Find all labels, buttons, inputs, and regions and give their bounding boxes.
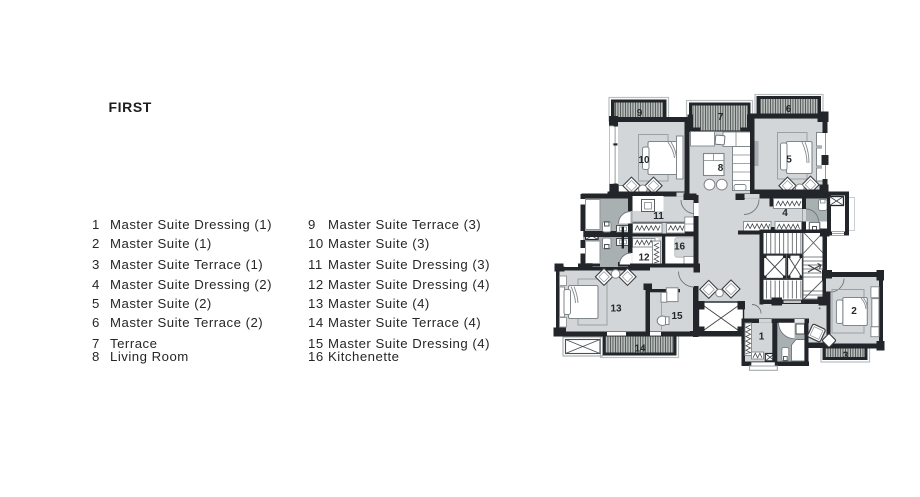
svg-text:15: 15	[671, 311, 683, 322]
svg-text:7: 7	[718, 112, 724, 123]
svg-text:4: 4	[782, 208, 788, 219]
svg-text:8: 8	[718, 163, 724, 174]
svg-text:12: 12	[638, 253, 650, 264]
svg-text:16: 16	[674, 242, 686, 253]
svg-text:13: 13	[610, 304, 622, 315]
svg-text:1: 1	[759, 332, 765, 343]
svg-text:11: 11	[653, 211, 664, 222]
svg-text:9: 9	[637, 108, 643, 119]
svg-text:5: 5	[786, 155, 792, 166]
svg-text:14: 14	[634, 344, 646, 355]
svg-text:2: 2	[851, 306, 857, 317]
svg-text:3: 3	[843, 351, 849, 362]
svg-text:6: 6	[786, 104, 792, 115]
svg-text:10: 10	[638, 155, 650, 166]
